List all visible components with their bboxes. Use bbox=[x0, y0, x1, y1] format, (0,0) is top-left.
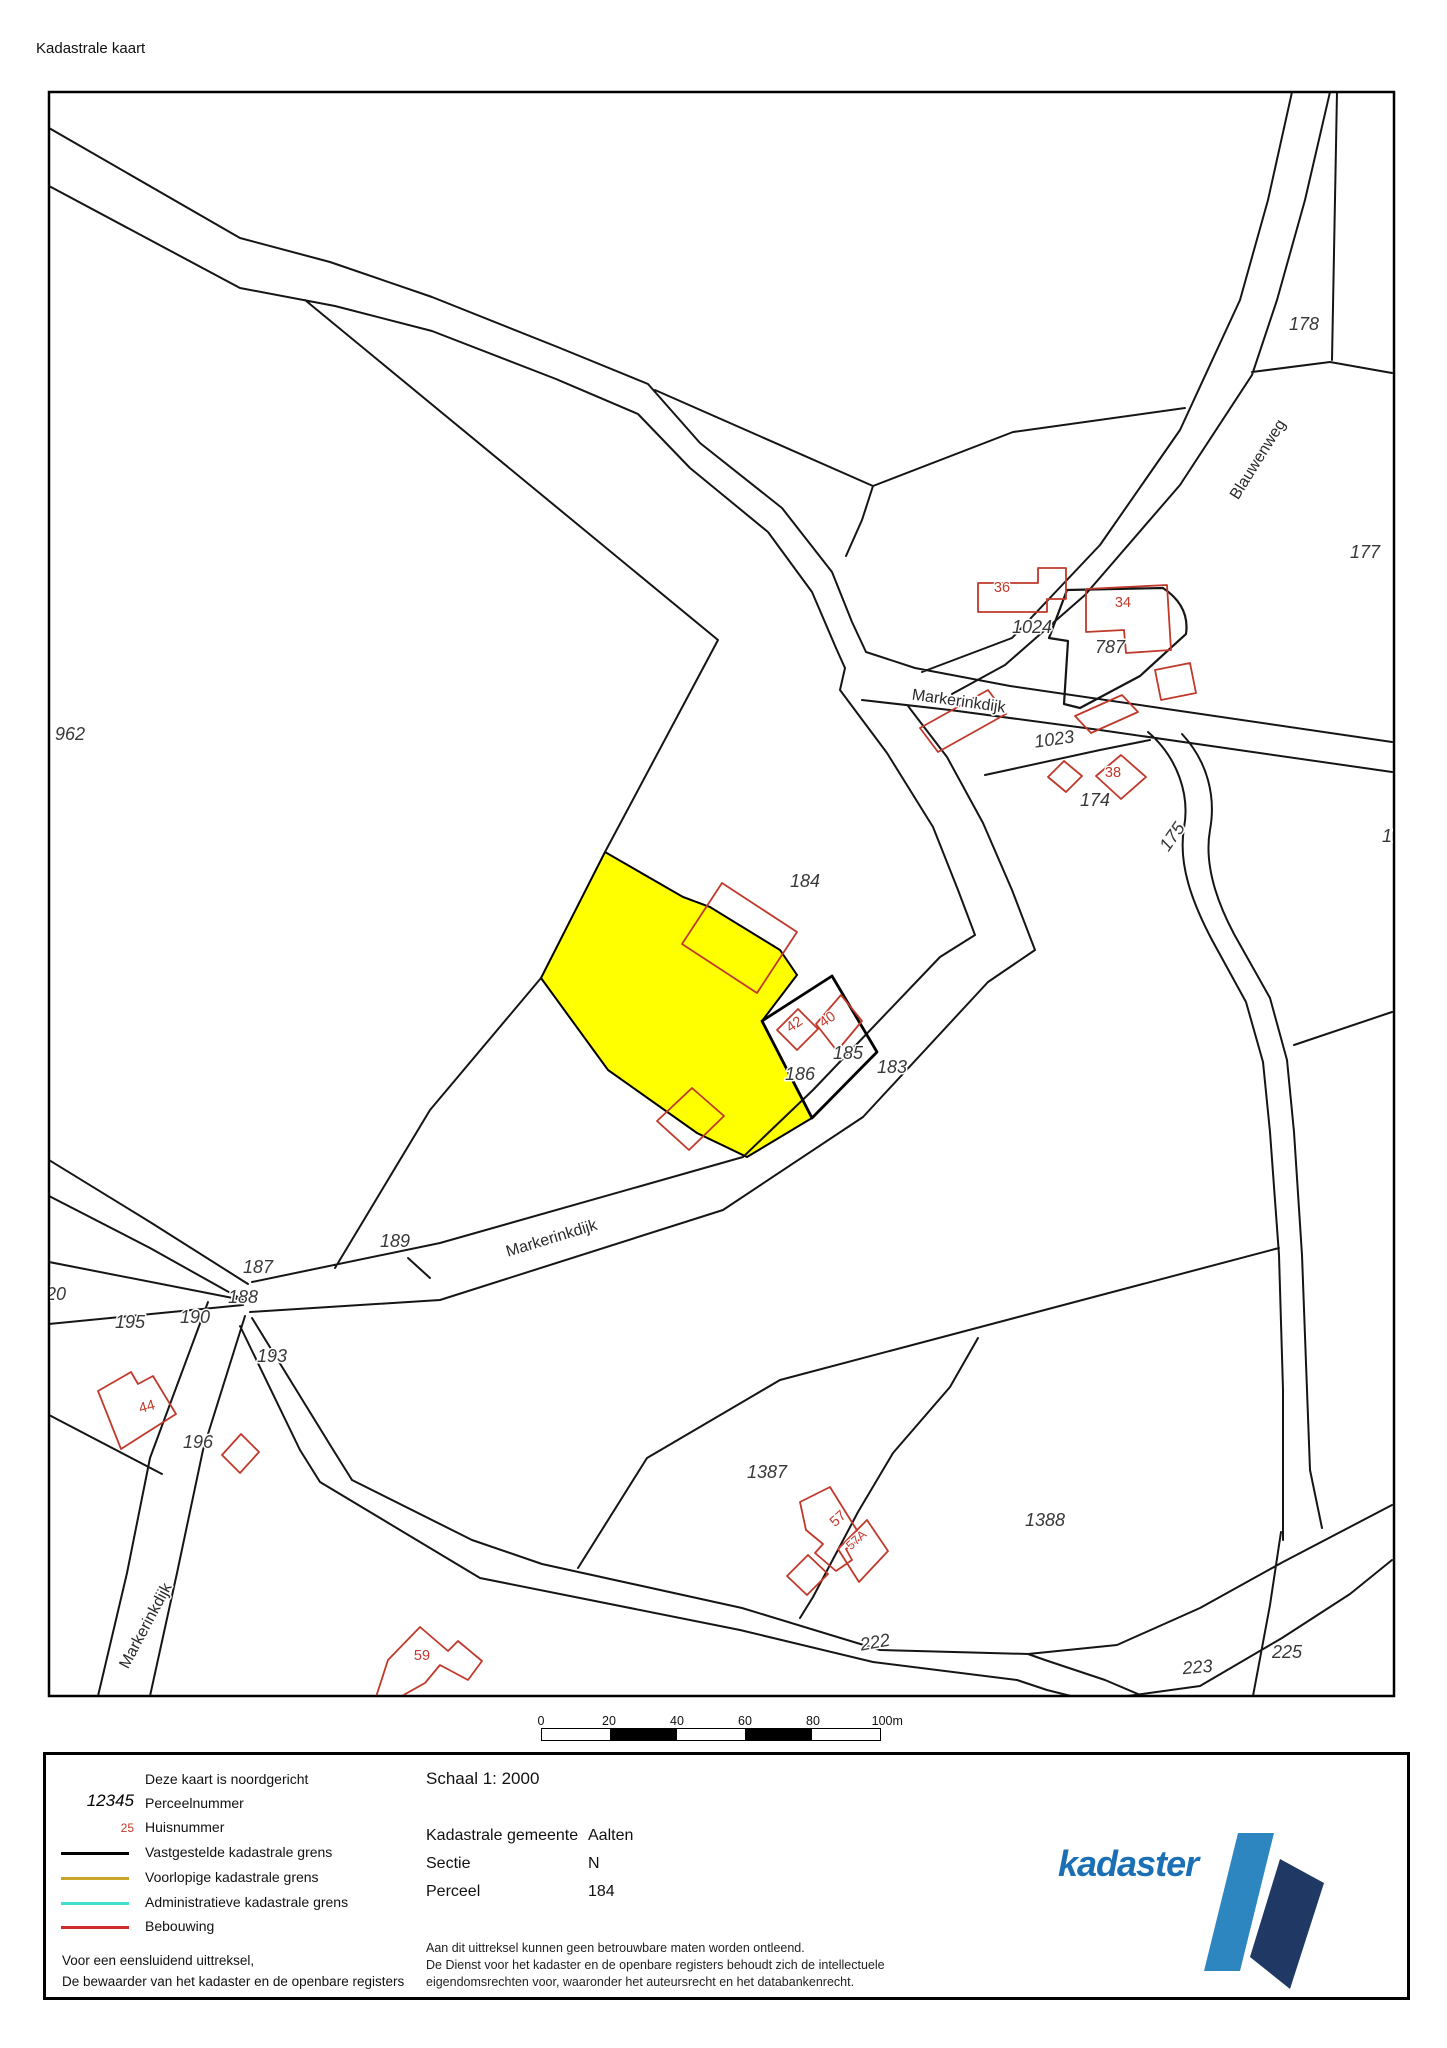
disclaimer-line-3: eigendomsrechten voor, waaronder het aut… bbox=[426, 1975, 854, 1989]
scale-tick-100: 100m bbox=[872, 1714, 903, 1728]
line-swatch-bebouwing bbox=[61, 1926, 129, 1929]
house-number-36: 36 bbox=[994, 580, 1010, 596]
kadaster-logo-text: kadaster bbox=[1058, 1843, 1198, 1885]
field-value-perceel: 184 bbox=[588, 1883, 615, 1901]
scale-segment bbox=[812, 1729, 880, 1740]
house-number-label: Huisnummer bbox=[145, 1819, 224, 1835]
parcel-label-187: 187 bbox=[243, 1257, 274, 1277]
north-note: Deze kaart is noordgericht bbox=[145, 1771, 308, 1787]
parcel-label-1388: 1388 bbox=[1025, 1510, 1065, 1530]
house-number-34: 34 bbox=[1115, 595, 1131, 611]
parcel-label-177: 177 bbox=[1350, 542, 1381, 562]
disclaimer-line-2: De Dienst voor het kadaster en de openba… bbox=[426, 1958, 885, 1972]
house-number-sample: 25 bbox=[52, 1821, 134, 1835]
footer-line-1: Voor een eensluidend uittreksel, bbox=[62, 1953, 254, 1968]
scale-segment bbox=[542, 1729, 610, 1740]
cadastral-extract-page: Kadastrale kaart 96217817717102478710231… bbox=[0, 0, 1447, 2048]
house-number-59: 59 bbox=[414, 1648, 430, 1664]
legend-line-label: Administratieve kadastrale grens bbox=[145, 1894, 348, 1910]
scale-segment bbox=[745, 1729, 813, 1740]
parcel-label-190: 190 bbox=[180, 1307, 210, 1327]
parcel-label-184: 184 bbox=[790, 871, 820, 891]
legend-line-label: Vastgestelde kadastrale grens bbox=[145, 1844, 332, 1860]
footer-line-2: De bewaarder van het kadaster en de open… bbox=[62, 1974, 404, 1989]
disclaimer-line-1: Aan dit uittreksel kunnen geen betrouwba… bbox=[426, 1941, 805, 1955]
kadaster-logo-mark bbox=[1194, 1831, 1344, 1991]
scale-segment bbox=[610, 1729, 678, 1740]
legend-panel: Deze kaart is noordgericht 12345 Perceel… bbox=[43, 1752, 1410, 2000]
field-label-perceel: Perceel bbox=[426, 1883, 480, 1901]
parcel-label-195: 195 bbox=[115, 1312, 146, 1332]
legend-line-label: Voorlopige kadastrale grens bbox=[145, 1869, 319, 1885]
line-swatch-administratief bbox=[61, 1902, 129, 1905]
parcel-label-787: 787 bbox=[1095, 637, 1126, 657]
parcel-number-sample: 12345 bbox=[52, 1791, 134, 1811]
parcel-label-962: 962 bbox=[55, 724, 85, 744]
parcel-label-183: 183 bbox=[877, 1057, 907, 1077]
scale-tick-60: 60 bbox=[738, 1714, 752, 1728]
parcel-label-193: 193 bbox=[257, 1346, 287, 1366]
scale-tick-80: 80 bbox=[806, 1714, 820, 1728]
field-value-gemeente: Aalten bbox=[588, 1827, 633, 1845]
parcel-label-188: 188 bbox=[228, 1287, 258, 1307]
scale-text: Schaal 1: 2000 bbox=[426, 1769, 539, 1789]
parcel-label-186: 186 bbox=[785, 1064, 816, 1084]
field-label-gemeente: Kadastrale gemeente bbox=[426, 1827, 578, 1845]
parcel-label-185: 185 bbox=[833, 1043, 864, 1063]
parcel-label-174: 174 bbox=[1080, 790, 1110, 810]
parcel-label-178: 178 bbox=[1289, 314, 1319, 334]
scale-tick-20: 20 bbox=[602, 1714, 616, 1728]
scale-bar-segments bbox=[541, 1728, 881, 1741]
parcel-label-1024: 1024 bbox=[1012, 617, 1052, 637]
scale-segment bbox=[677, 1729, 745, 1740]
line-swatch-voorlopig bbox=[61, 1877, 129, 1880]
parcel-number-label: Perceelnummer bbox=[145, 1795, 244, 1811]
parcel-label-189: 189 bbox=[380, 1231, 410, 1251]
field-value-sectie: N bbox=[588, 1855, 600, 1873]
parcel-label-225: 225 bbox=[1271, 1642, 1303, 1662]
line-swatch-vastgesteld bbox=[61, 1852, 129, 1855]
parcel-label-196: 196 bbox=[183, 1432, 214, 1452]
parcel-label-17: 17 bbox=[1382, 826, 1403, 846]
parcel-label-1387: 1387 bbox=[747, 1462, 788, 1482]
scale-tick-0: 0 bbox=[538, 1714, 545, 1728]
legend-line-label: Bebouwing bbox=[145, 1918, 214, 1934]
house-number-38: 38 bbox=[1105, 765, 1121, 781]
parcel-label-223: 223 bbox=[1181, 1656, 1214, 1679]
field-label-sectie: Sectie bbox=[426, 1855, 470, 1873]
scale-tick-40: 40 bbox=[670, 1714, 684, 1728]
scale-bar: 0 20 40 60 80 100m bbox=[541, 1714, 882, 1744]
